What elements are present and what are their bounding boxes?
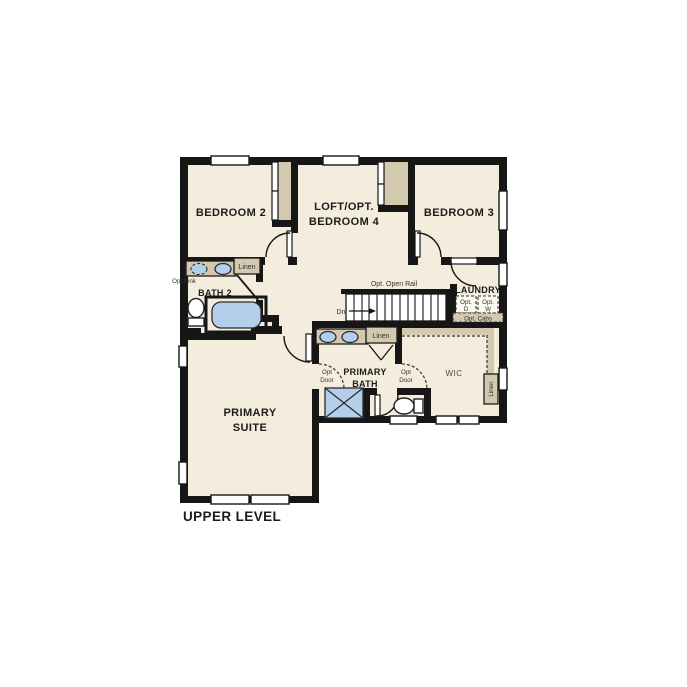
room-label-bedroom2: BEDROOM 2 — [196, 207, 266, 219]
bath2-opt-sink — [191, 264, 207, 275]
bath2-linen-label: Linen — [238, 264, 255, 271]
room-label-bedroom3: BEDROOM 3 — [424, 207, 494, 219]
primary-shower — [325, 388, 363, 418]
room-label-loft-line1: LOFT/OPT. — [314, 201, 374, 213]
opt-door-wic-line2: Door — [399, 377, 412, 384]
page-title: UPPER LEVEL — [183, 509, 281, 524]
room-label-bath2: BATH 2 — [198, 288, 232, 298]
floor-plan-page: Linen — [0, 0, 687, 687]
opt-door-primary-bath-line1: Opt — [322, 369, 332, 376]
primary-bath-linen-label: Linen — [372, 333, 389, 340]
staircase — [341, 289, 452, 321]
floor-plan: Linen — [0, 0, 687, 687]
room-label-primary-suite-line2: SUITE — [233, 422, 267, 434]
stairs-dn-label: Dn — [337, 309, 346, 316]
bath2-toilet — [188, 299, 204, 327]
room-label-primary-suite-line1: PRIMARY — [223, 407, 276, 419]
primary-bath-sink-1 — [320, 332, 336, 343]
opt-dryer-label-line1: Opt. — [460, 299, 472, 306]
primary-bath-sink-2 — [342, 332, 358, 343]
opt-door-primary-bath-line2: Door — [320, 377, 333, 384]
room-label-loft-line2: BEDROOM 4 — [309, 216, 380, 228]
opt-dryer-label-line2: D — [464, 306, 469, 313]
opt-washer-label-line2: W — [485, 306, 491, 313]
opt-cabs-label: Opt. Cabs — [464, 316, 492, 323]
bedroom2-closet — [272, 162, 291, 220]
opt-open-rail-label: Opt. Open Rail — [371, 281, 418, 288]
opt-washer-label-line1: Opt. — [482, 299, 494, 306]
loft-closet — [378, 162, 408, 205]
wic-linen-closet: Linen — [484, 374, 498, 404]
opt-sink-label: Opt.Sink — [172, 278, 197, 285]
room-label-primary-bath-line2: BATH — [352, 379, 378, 389]
room-label-wic: WIC — [445, 369, 462, 378]
room-label-primary-bath-line1: PRIMARY — [343, 367, 386, 377]
wic-linen-label: Linen — [488, 381, 495, 397]
bath2-sink — [215, 264, 231, 275]
opt-door-wic-line1: Opt — [401, 369, 411, 376]
room-label-laundry: LAUNDRY — [455, 285, 501, 295]
primary-toilet — [394, 398, 423, 414]
